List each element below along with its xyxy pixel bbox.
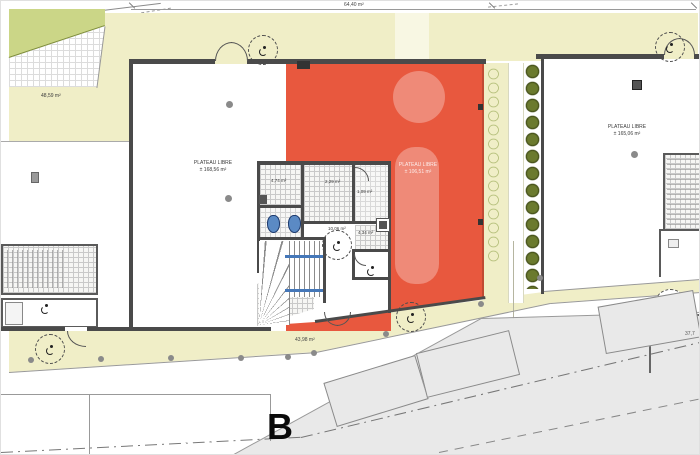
wheelchair-icon xyxy=(46,345,54,354)
core-wall xyxy=(257,161,391,165)
accessibility-circle xyxy=(248,35,278,65)
unit-right-area: ± 165,06 m² xyxy=(599,131,655,138)
left-stair-treads xyxy=(7,250,63,288)
core-wall xyxy=(352,277,391,280)
unit-selected-name: PLATEAU LIBRE xyxy=(393,162,443,169)
wheelchair-icon xyxy=(407,313,415,322)
right-edge-dimension: 37,7 xyxy=(685,331,695,337)
column-dot xyxy=(285,354,291,360)
parking-line xyxy=(1,394,271,395)
wall-box xyxy=(297,61,310,69)
wheelchair-icon xyxy=(41,304,49,313)
core-room-tiled xyxy=(304,165,352,222)
column-dot xyxy=(238,355,244,361)
wall-box xyxy=(478,104,483,110)
column-dot xyxy=(98,356,104,362)
right-stair-treads xyxy=(667,157,699,225)
toilet-fixture xyxy=(267,215,280,233)
column-dot xyxy=(383,331,389,337)
building-wall xyxy=(541,54,544,294)
column-dot xyxy=(28,357,34,363)
bush-row-light xyxy=(486,67,504,263)
core-wall xyxy=(352,249,391,252)
garden-path xyxy=(508,63,524,303)
room-area-label: 2,29 m² xyxy=(325,179,340,185)
unit-selected-area: ± 106,51 m² xyxy=(393,169,443,176)
column-dot xyxy=(225,195,232,202)
floor-plan-canvas: 64,40 m² 48,59 m² PLATEAU LIBRE ± 168,56… xyxy=(0,0,700,455)
core-wall xyxy=(301,161,304,239)
parking-line xyxy=(89,394,90,455)
section-letter: B xyxy=(267,406,293,448)
accessibility-circle xyxy=(655,32,685,62)
wall-box xyxy=(632,80,642,90)
wheelchair-icon xyxy=(259,46,267,55)
room-area-label: 4,34 m² xyxy=(358,230,373,236)
bush-row-dark xyxy=(523,63,543,289)
wall-box xyxy=(478,219,483,225)
column-dot xyxy=(311,350,317,356)
right-wc-room xyxy=(659,229,700,277)
column-dot xyxy=(226,101,233,108)
unit-left-area: ± 168,56 m² xyxy=(183,167,243,174)
wall-box xyxy=(259,195,267,204)
roof-edge-line xyxy=(488,3,518,7)
column-dot xyxy=(168,355,174,361)
building-wall xyxy=(1,327,271,331)
accessibility-circle xyxy=(396,302,426,332)
stair-winder xyxy=(259,241,290,325)
dimension-line xyxy=(131,9,696,10)
core-wall xyxy=(388,161,391,313)
column-dot xyxy=(537,275,543,281)
stair-rail xyxy=(285,289,323,292)
terrace-area-label: 48,59 m² xyxy=(41,93,61,99)
room-area-label: 1,09 m² xyxy=(357,189,372,195)
watermark-fragment xyxy=(395,13,429,61)
elevator xyxy=(377,219,389,231)
watermark-dot xyxy=(393,71,445,123)
column-dot xyxy=(478,301,484,307)
stair-rail xyxy=(285,255,323,258)
wheelchair-icon xyxy=(666,43,674,52)
dimension-label: 64,40 m² xyxy=(344,2,364,8)
wall-box xyxy=(31,172,39,183)
accessibility-circle xyxy=(35,334,65,364)
walkway-area-label: 43,98 m² xyxy=(295,337,315,343)
core-wall xyxy=(257,237,323,240)
core-wall xyxy=(257,205,303,208)
wc-fixture xyxy=(668,239,679,248)
wc-fixture xyxy=(5,302,23,325)
accessibility-circle xyxy=(322,230,352,260)
wheelchair-icon xyxy=(333,241,341,250)
room-area-label: 4,74 m² xyxy=(271,178,286,184)
column-dot xyxy=(631,151,638,158)
wheelchair-icon xyxy=(367,266,375,275)
dimension-tick xyxy=(691,2,697,8)
toilet-fixture xyxy=(288,215,301,233)
building-wall xyxy=(129,59,133,331)
